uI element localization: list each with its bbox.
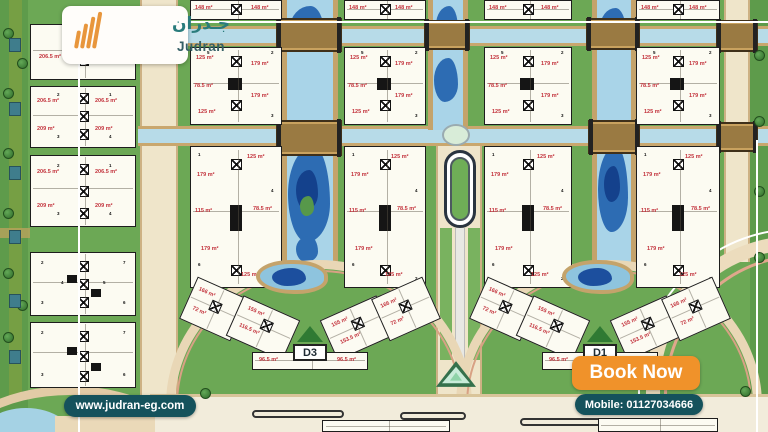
area-label: 206.5 m² (37, 170, 59, 176)
elevator-core-icon (380, 4, 391, 15)
elevator-core-icon (523, 4, 534, 15)
judran-masterplan-banner: 206.5 m²209 m²206.5 m²206.5 m²209 m²209 … (0, 0, 768, 432)
unit-number: 2 (57, 93, 60, 98)
area-label: 148 m² (349, 6, 366, 12)
elevator-core-icon (673, 4, 684, 15)
unit-number: 3 (57, 135, 60, 140)
book-now-button[interactable]: Book Now (572, 356, 700, 390)
area-label: 206.5 m² (37, 99, 59, 105)
building-block: 148 m²148 m² (344, 0, 426, 20)
unit-number: 2 (41, 261, 44, 266)
parking-stall (9, 350, 21, 364)
unit-number: 3 (41, 373, 44, 378)
area-label: 148 m² (251, 6, 268, 12)
logo-arabic-text: جـدران (158, 14, 244, 34)
unit-number: 4 (61, 281, 64, 286)
parking-stall (9, 102, 21, 116)
unit-number: 3 (41, 301, 44, 306)
building-block: 148 m²148 m² (484, 0, 572, 20)
service-core (67, 275, 77, 283)
unit-number: 3 (57, 212, 60, 217)
mobile-text: Mobile: 01127034666 (585, 399, 693, 411)
decor-right-line (756, 140, 758, 432)
mobile-pill[interactable]: Mobile: 01127034666 (575, 394, 703, 415)
area-label: 209 m² (37, 127, 54, 133)
area-label: 148 m² (195, 6, 212, 12)
parking-stall (9, 294, 21, 308)
tree-icon (17, 58, 28, 69)
parking-stall (9, 38, 21, 52)
unit-number: 2 (57, 164, 60, 169)
area-label: 148 m² (395, 6, 412, 12)
tree-icon (3, 332, 14, 343)
area-label: 148 m² (641, 6, 658, 12)
logo-stripes-icon (74, 18, 100, 56)
book-now-label: Book Now (590, 362, 683, 384)
service-core (67, 347, 77, 355)
area-label: 148 m² (489, 6, 506, 12)
judran-logo: جـدران Judran (62, 6, 188, 64)
tree-icon (3, 88, 14, 99)
tree-icon (3, 268, 14, 279)
area-label: 148 m² (541, 6, 558, 12)
tree-icon (3, 148, 14, 159)
website-text: www.judran-eg.com (76, 400, 185, 412)
parking-stall (9, 166, 21, 180)
area-label: 206.5 m² (39, 55, 61, 61)
logo-latin-text: Judran (158, 39, 244, 54)
tree-icon (3, 208, 14, 219)
building-block: 148 m²148 m² (636, 0, 720, 20)
parking-stall (9, 230, 21, 244)
website-pill[interactable]: www.judran-eg.com (64, 395, 196, 417)
area-label: 209 m² (37, 204, 54, 210)
unit-number: 2 (41, 331, 44, 336)
area-label: 148 m² (689, 6, 706, 12)
